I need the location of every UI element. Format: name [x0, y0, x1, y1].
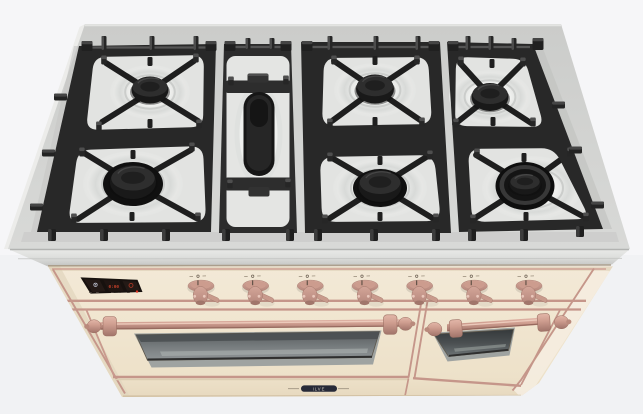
svg-text:0:00: 0:00 — [109, 285, 120, 290]
svg-text:ILVE: ILVE — [313, 386, 326, 391]
